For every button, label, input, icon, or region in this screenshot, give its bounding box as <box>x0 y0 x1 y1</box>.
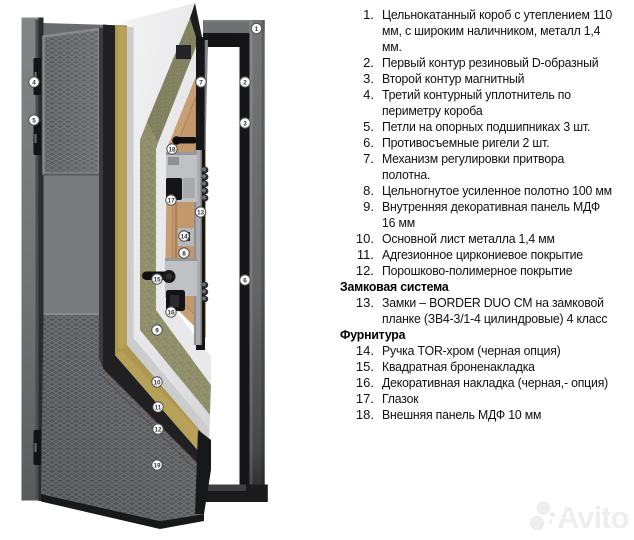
svg-text:Avito: Avito <box>557 500 628 535</box>
svg-text:16: 16 <box>167 310 175 317</box>
svg-text:11: 11 <box>155 405 162 412</box>
svg-text:19: 19 <box>153 463 161 470</box>
svg-text:6: 6 <box>243 278 247 285</box>
svg-text:17: 17 <box>167 198 175 205</box>
svg-text:8: 8 <box>182 251 186 258</box>
svg-text:18: 18 <box>168 147 176 154</box>
svg-text:9: 9 <box>155 328 159 335</box>
svg-text:5: 5 <box>32 118 36 125</box>
svg-text:14: 14 <box>180 234 188 241</box>
svg-text:12: 12 <box>154 427 162 434</box>
svg-text:7: 7 <box>199 80 203 87</box>
svg-text:13: 13 <box>197 210 205 217</box>
svg-text:1: 1 <box>255 26 259 33</box>
svg-text:15: 15 <box>153 277 161 284</box>
svg-text:10: 10 <box>153 380 161 387</box>
svg-text:4: 4 <box>32 80 36 87</box>
svg-text:2: 2 <box>243 80 247 87</box>
svg-text:3: 3 <box>243 121 247 128</box>
